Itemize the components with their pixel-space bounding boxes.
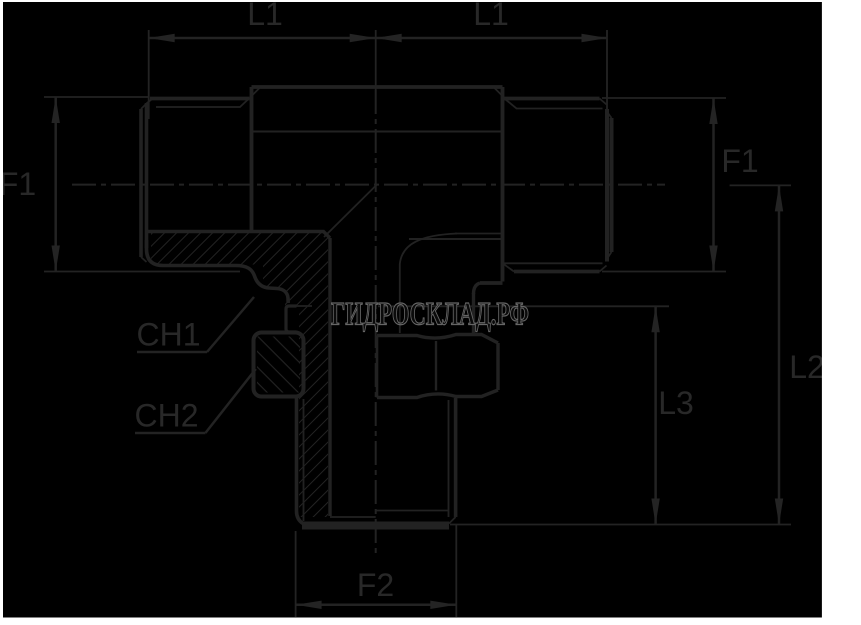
svg-text:L1: L1 bbox=[247, 0, 283, 32]
svg-text:L1: L1 bbox=[473, 0, 509, 32]
svg-text:L2: L2 bbox=[789, 349, 825, 385]
svg-text:F1: F1 bbox=[0, 166, 36, 202]
svg-text:F1: F1 bbox=[721, 143, 758, 179]
svg-text:ГИДРОСКЛАД.РФ: ГИДРОСКЛАД.РФ bbox=[331, 297, 529, 333]
svg-text:F2: F2 bbox=[357, 567, 394, 603]
svg-text:CH1: CH1 bbox=[136, 317, 200, 353]
svg-text:CH2: CH2 bbox=[134, 398, 198, 434]
svg-text:L3: L3 bbox=[658, 385, 694, 421]
